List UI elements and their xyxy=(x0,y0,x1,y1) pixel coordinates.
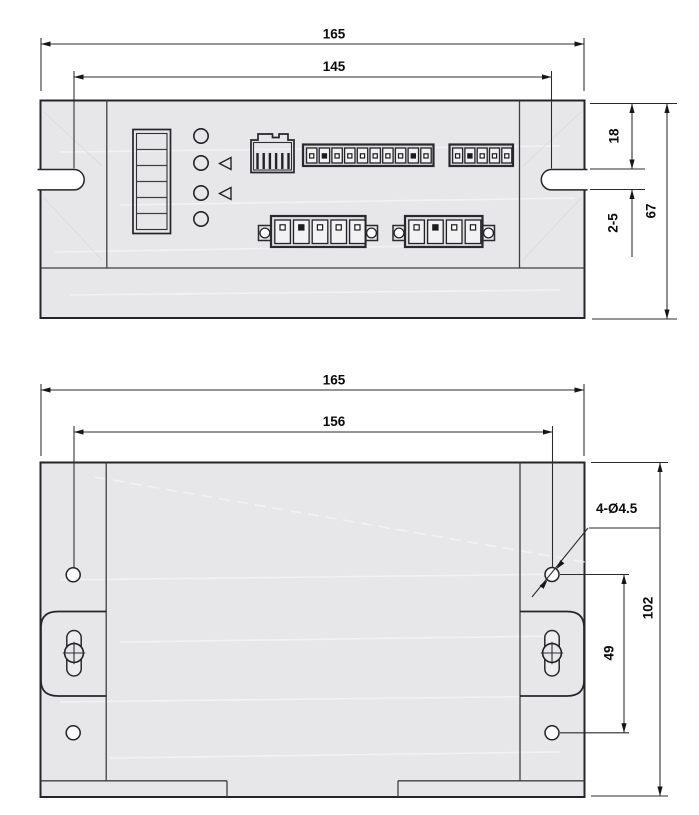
terminal-pin xyxy=(350,220,366,244)
dim-hole-spacing-horizontal: 156 xyxy=(323,414,346,429)
pin-contact-dot xyxy=(317,225,322,230)
pin-contact-dot xyxy=(348,154,352,158)
dim-mount-overall-height: 102 xyxy=(641,597,656,620)
pin-contact-dot xyxy=(505,154,509,158)
pin-contact-dot xyxy=(470,225,475,230)
pin-contact-dot xyxy=(355,225,360,230)
pin-contact-dot xyxy=(480,154,484,158)
front-view: 165 145 18 2-5 67 xyxy=(38,27,678,320)
dim-top-to-slot: 18 xyxy=(607,128,622,144)
pin-contact-dot xyxy=(433,225,438,230)
front-enclosure-body xyxy=(41,101,585,319)
dim-panel-thickness: 2-5 xyxy=(606,213,621,233)
dim-mount-overall-width: 165 xyxy=(323,373,346,388)
terminal-pin xyxy=(312,220,328,244)
left-mount-notch xyxy=(38,170,85,190)
dim-front-overall-width: 165 xyxy=(323,27,346,42)
pin-contact-dot xyxy=(280,225,285,230)
mounting-hole xyxy=(66,568,80,582)
pin-contact-dot xyxy=(452,225,457,230)
pin-contact-dot xyxy=(336,225,341,230)
mounting-hole xyxy=(545,568,559,582)
dim-hole-spacing-vertical: 49 xyxy=(602,645,617,660)
dim-front-overall-height: 67 xyxy=(644,203,659,218)
pin-contact-dot xyxy=(492,154,496,158)
terminal-pin xyxy=(275,220,291,244)
pin-contact-dot xyxy=(299,225,304,230)
mounting-hole xyxy=(545,726,559,740)
mounting-hole xyxy=(66,726,80,740)
terminal-pin xyxy=(331,220,347,244)
terminal-pin xyxy=(409,220,425,244)
dim-hole-callout: 4-Ø4.5 xyxy=(596,501,638,516)
terminal-pin xyxy=(294,220,310,244)
pin-contact-dot xyxy=(399,154,403,158)
dim-front-slot-spacing: 145 xyxy=(323,59,346,74)
pin-contact-dot xyxy=(411,154,415,158)
signal-terminal-row-2 xyxy=(450,145,514,167)
terminal-pin xyxy=(446,220,462,244)
pin-contact-dot xyxy=(468,154,472,158)
pin-contact-dot xyxy=(335,154,339,158)
terminal-pin xyxy=(428,220,444,244)
pin-contact-dot xyxy=(373,154,377,158)
right-mount-notch xyxy=(541,170,587,190)
left-mount-slot-screw xyxy=(63,631,85,677)
pin-contact-dot xyxy=(424,154,428,158)
right-mount-slot-screw xyxy=(541,631,563,677)
pin-contact-dot xyxy=(456,154,460,158)
pin-contact-dot xyxy=(360,154,364,158)
pin-contact-dot xyxy=(310,154,314,158)
pin-contact-dot xyxy=(386,154,390,158)
mounting-view: 165 156 4-Ø4.5 102 xyxy=(41,373,669,798)
terminal-pin xyxy=(465,220,481,244)
dimension-drawing: 165 145 18 2-5 67 xyxy=(0,0,699,815)
signal-terminal-row-1 xyxy=(303,145,434,167)
power-terminal-block-2 xyxy=(393,216,495,247)
pin-contact-dot xyxy=(414,225,419,230)
mounting-enclosure-body xyxy=(41,463,585,798)
pin-contact-dot xyxy=(322,154,326,158)
power-terminal-block-1 xyxy=(259,216,378,247)
